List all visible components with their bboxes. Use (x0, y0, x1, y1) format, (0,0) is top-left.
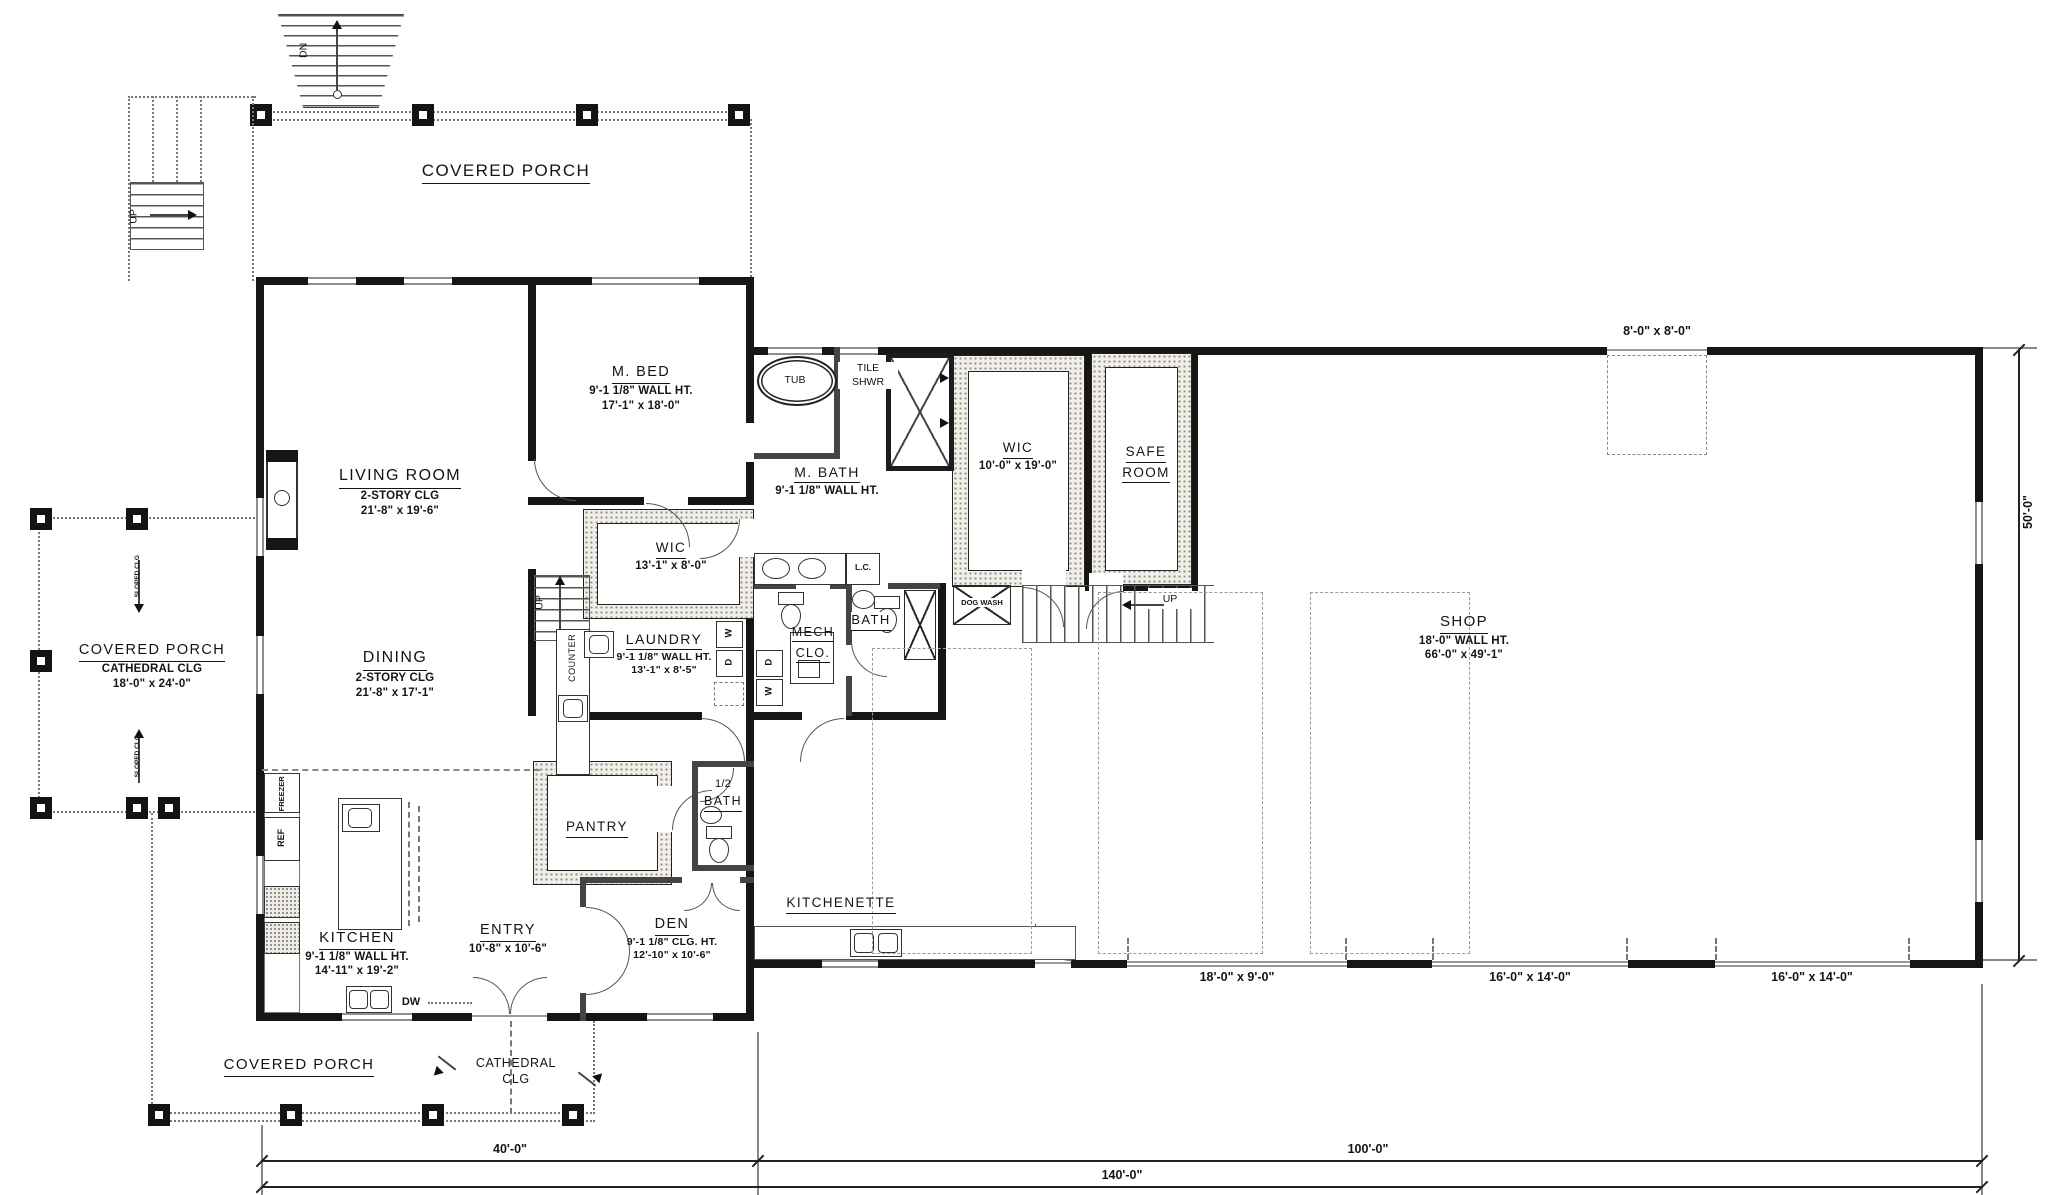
dim-garage-door-3: 16'-0" x 14'-0" (1747, 970, 1877, 984)
wall (754, 347, 768, 355)
porch-post (280, 1104, 302, 1126)
extension-line (1983, 347, 2037, 349)
wall (754, 960, 822, 968)
living-room-label: LIVING ROOM 2-STORY CLG 21'-8" x 19'-6" (300, 466, 500, 519)
up-label: UP (123, 201, 144, 231)
window (592, 277, 699, 285)
wall (878, 960, 1035, 968)
main-stairs-arrow-head (555, 576, 565, 585)
dim-house-width: 40'-0" (460, 1142, 560, 1156)
window (308, 277, 356, 285)
wall-oven (264, 886, 300, 918)
linen-closet-label: L.C. (846, 562, 880, 573)
wall (1707, 347, 1983, 355)
door-header (1035, 962, 1071, 964)
floor-plan-sheet: UP DN SLOPED CLG SLOPED CLG (0, 0, 2048, 1195)
porch-post (30, 650, 52, 672)
wall (1198, 347, 1607, 355)
dim-garage-door-1: 18'-0" x 9'-0" (1172, 970, 1302, 984)
island-seating-line (418, 806, 420, 922)
mech-door (800, 718, 844, 762)
porch-post (126, 797, 148, 819)
wall (713, 1013, 754, 1021)
porch-post (148, 1104, 170, 1126)
dn-arrow-line (336, 28, 338, 90)
wic-master-label: WIC 10'-0" x 19'-0" (958, 438, 1078, 474)
extension-line (1983, 959, 2037, 961)
window (256, 856, 264, 914)
den-label: DEN 9'-1 1/8" CLG. HT. 12'-10" x 10'-6" (592, 914, 752, 963)
bottom-porch-edge-2 (151, 1120, 595, 1122)
kitchen-sink-bowl (370, 990, 389, 1009)
vanity-sink (762, 558, 790, 579)
deck-line (176, 96, 178, 182)
up-arrow-head (188, 210, 197, 220)
shop-label: SHOP 18'-0" WALL HT. 66'-0" x 49'-1" (1374, 612, 1554, 663)
fireplace-cap (266, 450, 298, 462)
wall (746, 277, 754, 423)
ceiling-break-line (262, 769, 540, 771)
deck-line (152, 96, 154, 182)
main-stairs-arrow (559, 582, 561, 634)
dn-arrow-origin (333, 90, 342, 99)
wall (692, 865, 754, 871)
porch-post (576, 104, 598, 126)
window (256, 498, 264, 556)
dn-arrow-head (332, 20, 342, 29)
kitchen-label: KITCHEN 9'-1 1/8" WALL HT. 14'-11" x 19'… (267, 928, 447, 979)
shop-opening-outline (1607, 355, 1707, 455)
dn-label: DN (293, 35, 314, 65)
garage-jamb (1715, 938, 1717, 960)
left-porch-bottom-edge (38, 811, 258, 813)
window (768, 347, 822, 355)
dishwasher-label: DW (394, 995, 428, 1009)
dim-shop-width: 100'-0" (1318, 1142, 1418, 1156)
window (342, 1013, 412, 1021)
kitchenette-sink-bowl (854, 933, 874, 953)
wall (580, 877, 586, 907)
window (1975, 502, 1983, 564)
left-porch-top-edge (38, 517, 258, 519)
fireplace-icon (274, 490, 290, 506)
dim-shop-opening: 8'-0" x 8'-0" (1592, 324, 1722, 338)
shower-head-icon (940, 373, 949, 383)
cathedral-leader-head (430, 1066, 443, 1079)
opening-header (1607, 349, 1707, 351)
den-door-top-b (712, 883, 740, 911)
tub-label: TUB (763, 369, 827, 390)
porch-post (562, 1104, 584, 1126)
entry-french-door-a (473, 977, 510, 1014)
porch-post (30, 797, 52, 819)
window (404, 277, 452, 285)
wall (754, 453, 840, 459)
fireplace-cap (266, 538, 298, 550)
dog-wash-label: DOG WASH (950, 598, 1014, 608)
window (840, 347, 878, 355)
door-header (472, 1015, 547, 1017)
cathedral-note-label: CATHEDRAL CLG (456, 1055, 576, 1088)
ref-label: REF (276, 810, 288, 866)
garage-opening (1432, 965, 1628, 967)
entry-label: ENTRY 10'-8" x 10'-6" (438, 920, 578, 957)
covered-porch-bottom-label: COVERED PORCH (199, 1055, 399, 1077)
dimension-line-40 (262, 1160, 758, 1162)
entry-french-door-b (510, 977, 547, 1014)
covered-porch-top-label: COVERED PORCH (386, 160, 626, 184)
wall (1910, 960, 1983, 968)
pantry-label: PANTRY (547, 817, 647, 838)
bottom-porch-edge (151, 1112, 595, 1114)
bottom-porch-right-edge (593, 1021, 595, 1114)
window (647, 1013, 713, 1021)
dimension-line-100 (758, 1160, 1982, 1162)
safe-room-label: SAFE ROOM (1096, 442, 1196, 484)
dim-garage-door-2: 16'-0" x 14'-0" (1465, 970, 1595, 984)
washer-2-label: W (763, 678, 775, 705)
garage-opening (1715, 961, 1910, 963)
counter-label: COUNTER (567, 630, 579, 686)
sloped-clg-label: SLOPED CLG (134, 724, 142, 788)
cathedral-leader (438, 1055, 457, 1070)
shop-stall-outline (1098, 592, 1263, 954)
porch-post (158, 797, 180, 819)
laundry-chute (714, 682, 744, 706)
window (256, 636, 264, 694)
garage-jamb (1908, 938, 1910, 960)
half-bath-label: 1/2 BATH (693, 777, 753, 812)
den-door-top-a (684, 883, 712, 911)
shower-head-icon (940, 418, 949, 428)
top-porch-right-edge (750, 119, 752, 281)
mbath-label: M. BATH 9'-1 1/8" WALL HT. (737, 463, 917, 499)
wall (452, 277, 592, 285)
wrap-strip-edge (151, 813, 153, 1116)
deck-line (200, 96, 202, 182)
laundry-label: LAUNDRY 9'-1 1/8" WALL HT. 13'-1" x 8'-5… (584, 630, 744, 678)
bath-sink (852, 590, 875, 609)
kitchen-sink-bowl (349, 990, 368, 1009)
tile-shower-label: TILE SHWR (838, 362, 898, 389)
kitchenette-label: KITCHENETTE (761, 893, 921, 914)
laundry-door (701, 718, 745, 762)
covered-porch-left-label: COVERED PORCH CATHEDRAL CLG 18'-0" x 24'… (62, 640, 242, 692)
wall (1628, 960, 1715, 968)
dining-label: DINING 2-STORY CLG 21'-8" x 17'-1" (295, 648, 495, 701)
up-label: UP (529, 587, 550, 617)
porch-post (126, 508, 148, 530)
wic-hall-door-gap (738, 519, 754, 557)
wall (580, 877, 682, 883)
porch-post (30, 508, 52, 530)
wall (528, 281, 536, 461)
wall (1071, 960, 1127, 968)
window (1975, 840, 1983, 902)
wall (412, 1013, 472, 1021)
garage-jamb (1626, 938, 1628, 960)
up-arrow-line (150, 214, 188, 216)
living-hall-door (534, 459, 576, 501)
wall (1347, 960, 1432, 968)
wic-hall-label: WIC 13'-1" x 8'-0" (611, 538, 731, 574)
bath-label: BATH (841, 610, 901, 631)
mbed-label: M. BED 9'-1 1/8" WALL HT. 17'-1" x 18'-0… (551, 362, 731, 414)
vanity-wall (888, 583, 940, 589)
wrap-porch-inner-edge (252, 96, 254, 281)
wall (528, 497, 644, 505)
extension-line (757, 1032, 759, 1195)
wall (256, 1013, 342, 1021)
island-seating-line (408, 802, 410, 926)
wall (580, 993, 586, 1021)
garage-opening (1127, 961, 1347, 963)
counter-sink-bowl (563, 699, 583, 718)
vanity-sink (798, 558, 826, 579)
island-sink-bowl (348, 808, 372, 828)
wall (846, 676, 852, 716)
counter-dash (428, 1002, 472, 1004)
wall (740, 877, 754, 883)
porch-post (412, 104, 434, 126)
toilet (706, 826, 732, 864)
window (822, 960, 878, 968)
sloped-clg-label: SLOPED CLG (134, 544, 142, 608)
porch-post (422, 1104, 444, 1126)
dimension-line-140 (262, 1186, 1982, 1188)
top-porch-edge-2 (258, 119, 750, 121)
wrap-porch-top-edge (128, 96, 256, 98)
dimension-line-50 (2018, 349, 2020, 961)
dim-total-width: 140'-0" (1072, 1168, 1172, 1182)
top-porch-edge (258, 111, 750, 113)
wall (547, 1013, 647, 1021)
garage-opening (1432, 961, 1628, 963)
garage-opening (1127, 965, 1347, 967)
wall (356, 277, 404, 285)
porch-post (728, 104, 750, 126)
garage-opening (1715, 965, 1910, 967)
wall (746, 712, 802, 720)
dim-shop-depth: 50'-0" (2021, 477, 2035, 547)
extension-line (1981, 984, 1983, 1195)
